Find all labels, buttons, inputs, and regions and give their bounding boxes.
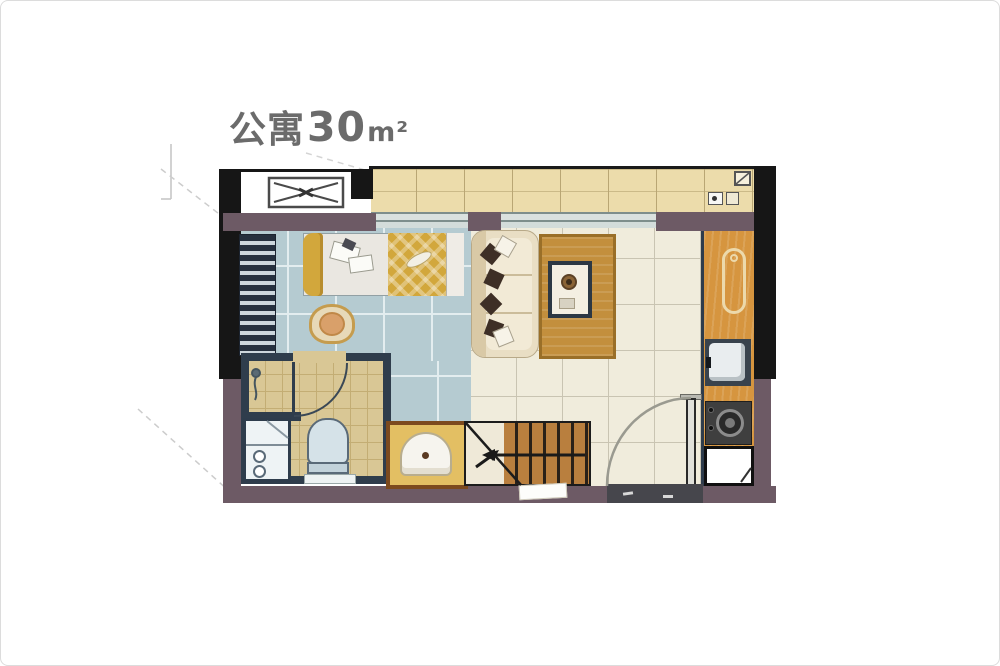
site-marker-line (161, 144, 171, 199)
washbasin-drain (422, 452, 429, 459)
bed-pillow (348, 254, 374, 273)
cooktop-knob (708, 425, 714, 431)
toilet-shelf (304, 474, 356, 484)
wardrobe (239, 234, 276, 356)
washing-machine-lid-line (246, 444, 288, 446)
wall-top-left (223, 213, 376, 231)
bed-headboard (303, 233, 323, 296)
wall-right-lower (754, 379, 771, 503)
bathroom-door (292, 362, 295, 416)
wall-left-lower (223, 379, 241, 503)
cutting-board-handle (730, 254, 738, 262)
vanity-corridor-floor (391, 361, 473, 423)
bed-foot (446, 233, 464, 296)
entry-door (686, 398, 696, 486)
title-unit: m² (367, 119, 409, 146)
wall-right (754, 166, 776, 379)
washing-machine-dial (253, 450, 266, 463)
leader-line-bottom (138, 409, 229, 491)
refrigerator (704, 446, 754, 486)
stair-treads (504, 423, 589, 484)
balcony-fixture (726, 192, 739, 205)
cooktop-knob (708, 407, 714, 413)
armchair-cushion (319, 312, 345, 336)
page-title: 公寓30m² (229, 107, 409, 148)
washing-machine-dial (253, 465, 266, 478)
wall-notch (351, 169, 373, 199)
wall-left (219, 169, 241, 379)
table-item (559, 298, 575, 309)
title-prefix: 公寓 (229, 111, 305, 148)
wall-top-middle (468, 212, 501, 231)
floor-plan-card: 公寓30m² (0, 0, 1000, 666)
stairs-label-patch (519, 483, 568, 500)
cooktop-burner-core (725, 418, 735, 428)
kitchen-sink-basin (709, 343, 745, 381)
washing-machine (243, 418, 291, 482)
toilet-tank (307, 462, 349, 474)
kitchen-faucet (706, 357, 711, 368)
title-area-value: 30 (307, 107, 366, 148)
bathroom-door-opening (293, 351, 346, 363)
floor-plan (219, 166, 776, 503)
leader-line-top (161, 169, 223, 217)
balcony-drain-box (734, 171, 751, 186)
plate-food (566, 279, 572, 285)
wall-top-right (656, 212, 754, 231)
toilet (307, 418, 349, 464)
door-mat (607, 484, 703, 503)
door-mat-detail (663, 495, 673, 498)
balcony-floor (369, 166, 754, 213)
balcony-fixture-dot (712, 196, 717, 201)
